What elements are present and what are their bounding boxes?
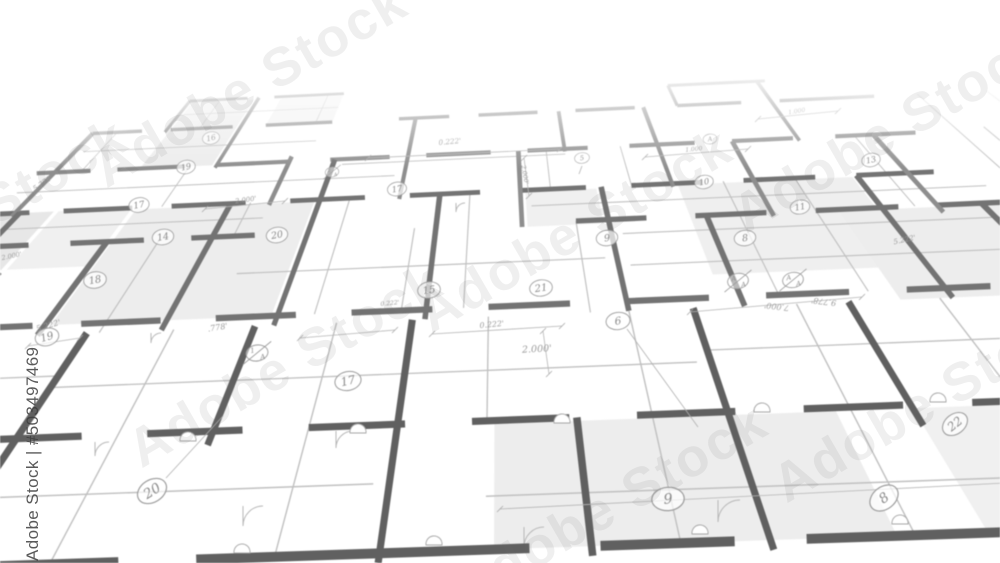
dimension-label: .778' [207,322,228,334]
stock-photo-frame: 161917142018191715216981011135A228920171… [0,0,1000,563]
svg-text:10: 10 [698,176,710,188]
dimension-label: 0.222' [438,136,461,147]
svg-text:14: 14 [156,231,170,244]
dimension-label: 9.778' [811,295,837,307]
svg-text:20: 20 [269,229,284,242]
svg-text:19: 19 [180,161,192,173]
room-number-label: A [702,133,717,145]
room-number-label: 15 [417,280,442,299]
room-number-label: 20 [133,473,171,508]
svg-text:9: 9 [663,491,673,508]
room-number-label: 17 [333,369,363,393]
room-number-label: 13 [860,151,881,168]
dimension-label: 2.000' [521,343,552,356]
dimension-label: 0.222' [380,299,400,308]
dimension-label: 7.000' [764,300,790,312]
svg-text:15: 15 [422,284,436,297]
room-number-label: 5 [574,152,590,165]
svg-text:11: 11 [794,202,807,214]
section-marker: AA [777,269,810,291]
dimension-label: 0.222' [479,319,504,330]
floorplan-canvas: 161917142018191715216981011135A228920171… [0,0,1000,563]
svg-text:21: 21 [533,282,548,295]
svg-text:18: 18 [88,274,102,287]
room-number-label: 6 [605,311,631,331]
room-number-label: 21 [529,278,554,297]
dimension-label: 5.778' [32,174,55,193]
svg-text:13: 13 [865,154,877,166]
